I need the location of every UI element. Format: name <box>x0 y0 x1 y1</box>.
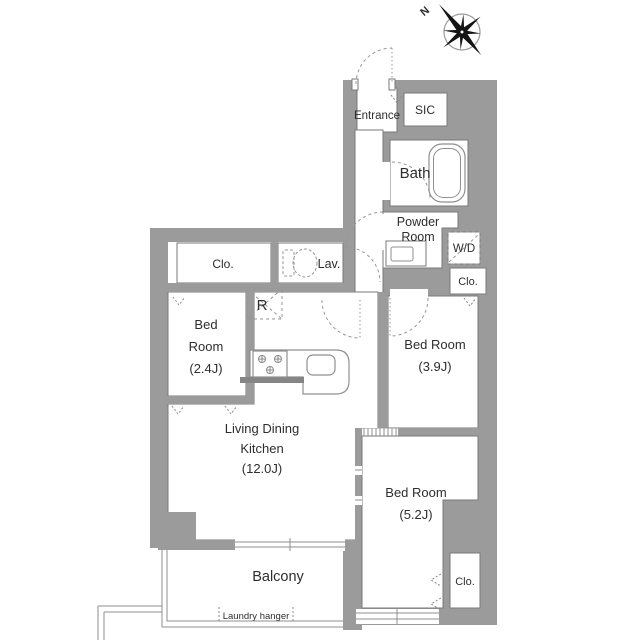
bedroom-52-label-1: Bed Room <box>385 485 446 500</box>
counter-half-wall <box>240 377 304 383</box>
powder-sink <box>386 241 426 266</box>
entrance-label: Entrance <box>354 110 400 122</box>
balcony-label: Balcony <box>252 569 304 585</box>
bedroom-24-label-1: Bed <box>194 317 217 332</box>
ldk-balcony-window <box>235 538 345 551</box>
sic-label: SIC <box>415 103 435 117</box>
closet-hall-label: Clo. <box>212 257 233 271</box>
compass-rose: N <box>418 4 481 55</box>
bedroom-52-window <box>356 609 439 624</box>
ldk-label-1: Living Dining <box>225 421 299 436</box>
wd-label: W/D <box>453 243 475 255</box>
kitchen-sink <box>307 355 335 375</box>
floor-plan: N Entrance SIC Bath Powder Room W/D Clo.… <box>0 0 640 640</box>
floor-plan-svg: N Entrance SIC Bath Powder Room W/D Clo.… <box>0 0 640 640</box>
bedroom-24-label-2: Room <box>189 339 224 354</box>
powder-label-2: Room <box>401 230 434 244</box>
ldk-label-3: (12.0J) <box>242 461 282 476</box>
ldk-label-2: Kitchen <box>240 441 283 456</box>
closet-52-label: Clo. <box>455 576 475 588</box>
bedroom-39-label-1: Bed Room <box>404 337 465 352</box>
refrigerator-label: R <box>257 297 268 314</box>
bath-label: Bath <box>400 165 431 182</box>
laundry-hanger-label: Laundry hanger <box>223 611 290 622</box>
north-label: N <box>418 5 432 19</box>
hallway <box>355 130 383 296</box>
bedroom-52-label-2: (5.2J) <box>399 507 432 522</box>
closet-39-label: Clo. <box>458 276 478 288</box>
bathtub <box>429 144 465 202</box>
bedroom-39-label-2: (3.9J) <box>418 359 451 374</box>
lavatory-label: Lav. <box>318 257 341 271</box>
bedroom-52-louver-window <box>362 429 398 436</box>
neighbor-partition <box>98 606 162 640</box>
bedroom-24-label-3: (2.4J) <box>189 361 222 376</box>
powder-label-1: Powder <box>397 215 439 229</box>
balcony-railing <box>98 550 343 640</box>
